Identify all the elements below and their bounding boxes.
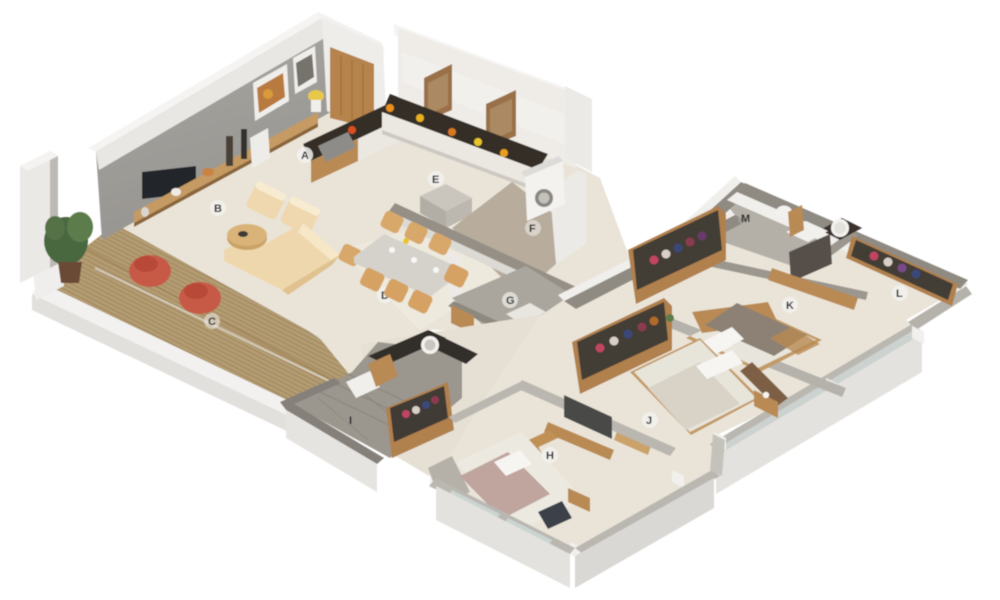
svg-text:J: J xyxy=(646,415,652,427)
svg-text:G: G xyxy=(506,295,515,307)
svg-text:H: H xyxy=(546,450,554,462)
svg-text:B: B xyxy=(214,203,222,215)
svg-text:M: M xyxy=(741,213,750,225)
svg-text:K: K xyxy=(786,300,794,312)
svg-text:E: E xyxy=(432,174,439,186)
svg-text:I: I xyxy=(349,415,352,427)
svg-text:F: F xyxy=(529,223,536,235)
svg-text:A: A xyxy=(301,150,309,162)
svg-text:L: L xyxy=(896,288,903,300)
svg-text:C: C xyxy=(208,316,216,328)
